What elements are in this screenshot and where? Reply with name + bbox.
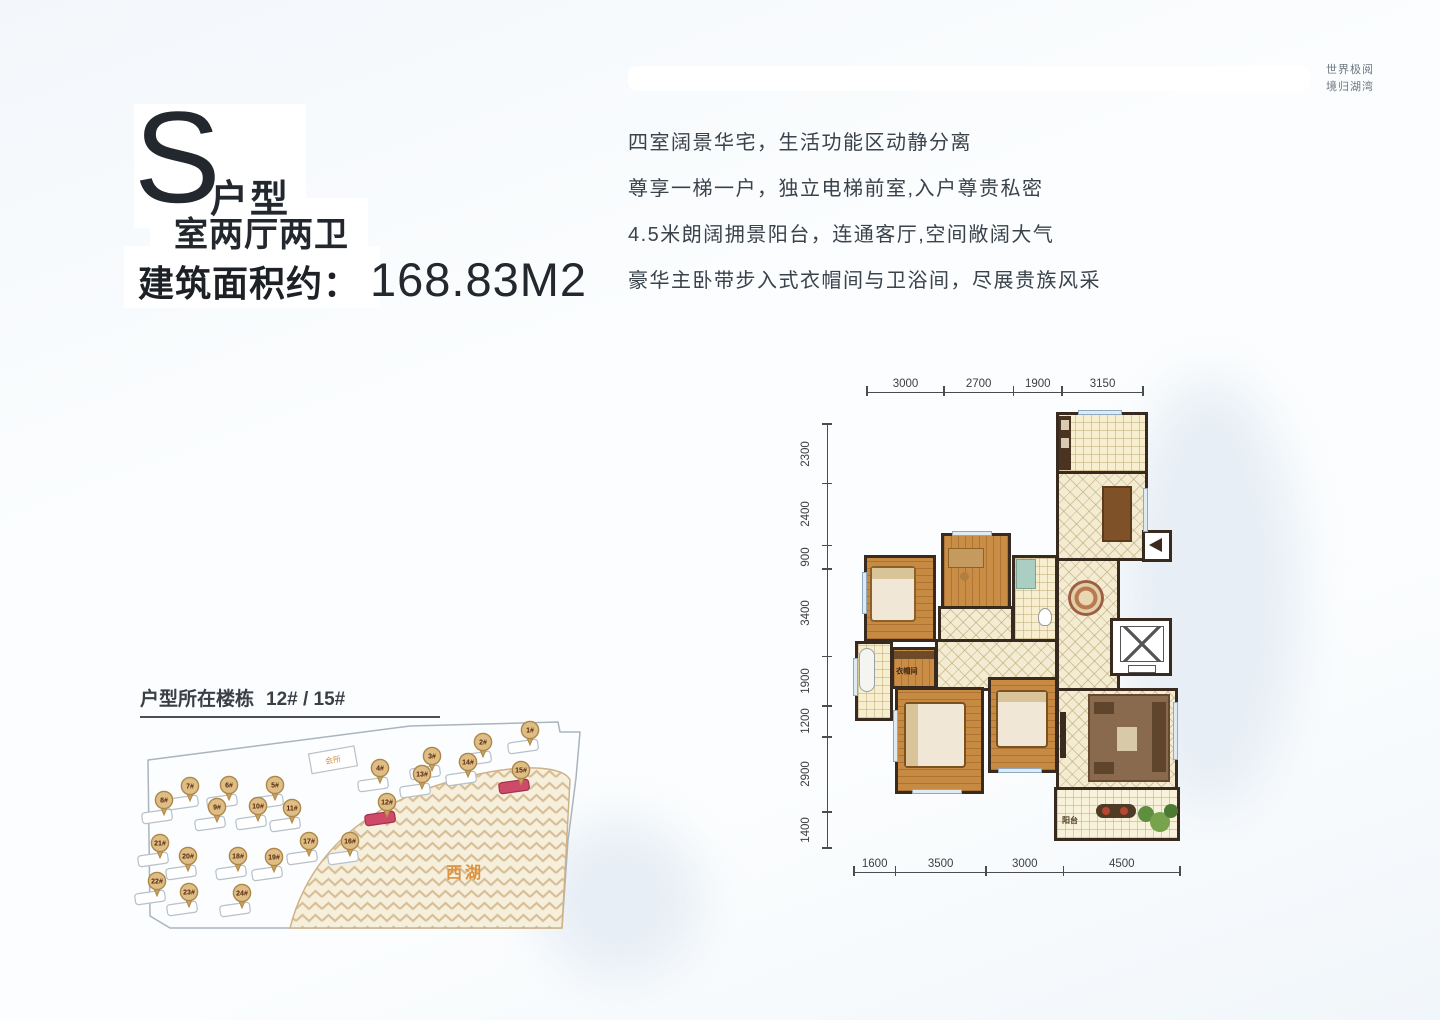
site-map-title: 户型所在楼栋 12# / 15# [140, 684, 440, 718]
elevator-door [1128, 665, 1156, 673]
svg-text:23#: 23# [183, 890, 195, 897]
area-label: 建筑面积约： [138, 255, 360, 307]
dimension-label: 2900 [800, 752, 812, 796]
window [998, 768, 1042, 773]
dimension-label: 4500 [1109, 858, 1135, 870]
svg-text:8#: 8# [160, 798, 168, 805]
dimension-label: 2300 [800, 432, 812, 476]
svg-text:2#: 2# [479, 740, 487, 747]
bed2-pillow [998, 692, 1046, 702]
floor-medallion [1068, 580, 1104, 616]
svg-text:20#: 20# [182, 854, 194, 861]
description-block: 四室阔景华宅，生活功能区动静分离尊享一梯一户，独立电梯前室,入户尊贵私密4.5米… [628, 126, 1101, 310]
svg-text:11#: 11# [286, 806, 297, 813]
elevator-shaft [1110, 618, 1172, 676]
lake-label: 西湖 [446, 864, 484, 882]
sofa-side2 [1094, 762, 1114, 774]
svg-text:24#: 24# [236, 891, 248, 898]
dimension-label: 3000 [1012, 858, 1038, 870]
balcony-label: 阳台 [1062, 814, 1078, 826]
site-map-drawing: 会所 西湖 1#2#3#4#5#6#7#8#9#10#11#12#13#14#1… [140, 720, 605, 934]
window [1173, 702, 1178, 760]
svg-text:15#: 15# [515, 768, 527, 775]
svg-text:6#: 6# [225, 783, 233, 790]
brand-tagline-line1: 世界极阅 [1326, 62, 1374, 79]
sofa-side1 [1094, 702, 1114, 714]
dimension-label: 3000 [893, 378, 919, 390]
closet-rack [894, 651, 934, 659]
balcony-cushion1 [1102, 807, 1110, 815]
svg-text:5#: 5# [271, 783, 279, 790]
dimension-label: 1900 [1025, 378, 1051, 390]
entry-door [1142, 530, 1172, 562]
window [1078, 410, 1122, 415]
dining-table [1102, 486, 1132, 542]
window [952, 531, 992, 536]
closet-label: 衣帽间 [896, 665, 918, 676]
room-study [941, 533, 1011, 609]
area-value: 168.83M2 [370, 252, 587, 307]
dimension-label: 1400 [800, 808, 812, 852]
svg-text:9#: 9# [213, 805, 221, 812]
dimension-label: 3150 [1090, 378, 1116, 390]
dimension-label: 1200 [800, 699, 812, 743]
toilet [1038, 608, 1052, 626]
master-bed-pillow [906, 704, 918, 766]
dimension-label: 1900 [800, 659, 812, 703]
window [912, 789, 962, 794]
unit-type-letter: S [134, 92, 221, 222]
window [893, 710, 898, 762]
kitchen-stove [1061, 420, 1069, 430]
svg-text:7#: 7# [186, 784, 194, 791]
svg-text:1#: 1# [526, 728, 534, 735]
window [862, 572, 867, 614]
dimension-label: 3500 [928, 858, 954, 870]
svg-text:10#: 10# [252, 804, 264, 811]
description-highlight-bar [628, 66, 1310, 91]
description-line: 尊享一梯一户，独立电梯前室,入户尊贵私密 [628, 172, 1101, 201]
floorplan-dims-left: 2300240090034001900120029001400 [800, 424, 834, 848]
room-hall-mini [938, 606, 1014, 642]
svg-text:17#: 17# [303, 839, 315, 846]
sofa-main [1152, 702, 1166, 772]
window [1143, 488, 1148, 532]
brand-tagline: 世界极阅 境归湖湾 [1326, 62, 1374, 96]
entry-arrow-icon [1149, 538, 1162, 552]
brand-tagline-line2: 境归湖湾 [1326, 79, 1374, 96]
svg-text:18#: 18# [232, 854, 244, 861]
site-map-title-text: 户型所在楼栋 [140, 684, 254, 711]
floor-plan: 3000270019003150 23002400900340019001200… [798, 360, 1222, 910]
floorplan-dims-bottom: 1600350030004500 [854, 858, 1180, 876]
bathtub [859, 648, 875, 692]
site-map-buildings: 12# / 15# [266, 689, 345, 711]
kitchen-sink [1061, 438, 1069, 448]
unit-layout-subtitle: 室两厅两卫 [174, 207, 349, 256]
svg-text:13#: 13# [416, 772, 428, 779]
bed-top-pillow [872, 568, 914, 579]
floorplan-dims-top: 3000270019003150 [867, 378, 1143, 396]
shower [1016, 559, 1036, 589]
svg-text:19#: 19# [268, 855, 280, 862]
svg-text:12#: 12# [381, 800, 393, 807]
description-line: 豪华主卧带步入式衣帽间与卫浴间，尽展贵族风采 [628, 264, 1101, 293]
dimension-label: 2400 [800, 492, 812, 536]
svg-text:3#: 3# [428, 754, 436, 761]
dimension-label: 1600 [862, 858, 888, 870]
dimension-label: 900 [800, 535, 812, 579]
site-map: 户型所在楼栋 12# / 15# 会所 西湖 1#2#3#4#5#6#7#8#9… [140, 684, 605, 718]
plant-icon [1164, 804, 1178, 818]
window [853, 658, 858, 696]
svg-text:22#: 22# [151, 879, 163, 886]
svg-text:16#: 16# [344, 839, 356, 846]
description-line: 四室阔景华宅，生活功能区动静分离 [628, 126, 1101, 155]
study-chair [960, 572, 969, 581]
coffee-table [1116, 726, 1138, 752]
svg-text:14#: 14# [462, 760, 474, 767]
elevator-x-icon [1120, 626, 1164, 662]
tv-cabinet [1060, 712, 1066, 758]
dimension-label: 2700 [966, 378, 992, 390]
balcony-cushion2 [1120, 807, 1128, 815]
study-desk [948, 548, 984, 568]
svg-text:21#: 21# [154, 841, 166, 848]
area-row: 建筑面积约： 168.83M2 [138, 252, 587, 307]
dimension-label: 3400 [800, 591, 812, 635]
description-line: 4.5米朗阔拥景阳台，连通客厅,空间敞阔大气 [628, 218, 1101, 247]
svg-text:4#: 4# [376, 766, 384, 773]
